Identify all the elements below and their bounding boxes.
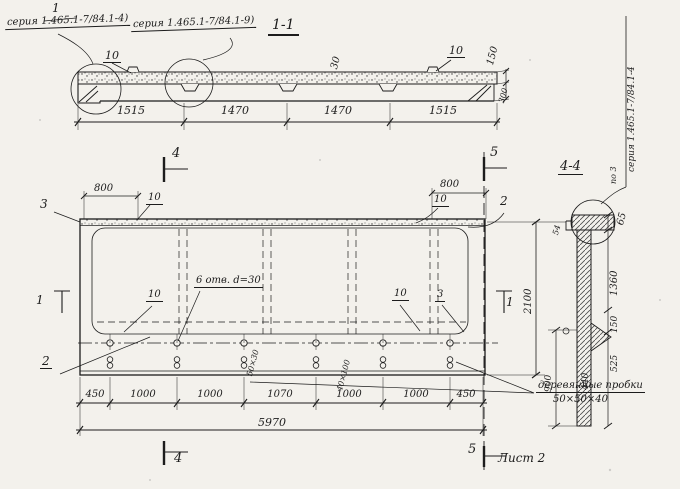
dim-10-inner-left: 10 xyxy=(146,290,163,302)
dim-450-a: 450 xyxy=(75,390,115,400)
plugs-note-line2: 50×50×40 xyxy=(553,395,608,405)
plan-view-linework xyxy=(54,152,566,470)
position-2-top-right: 2 xyxy=(500,195,508,207)
dim-440: 440 xyxy=(582,373,591,390)
dim-900: 900 xyxy=(545,375,554,392)
section-mark-1-left: 1 xyxy=(36,294,44,306)
blueprint-sheet: 1 серия 1.465.1-7/84.1-4) серия 1.465.1-… xyxy=(0,0,680,489)
position-1-label: 1 xyxy=(52,2,60,14)
dim-525: 525 xyxy=(611,355,620,372)
dim-1000-c: 1000 xyxy=(329,390,369,400)
dim-10-top-right: 10 xyxy=(447,45,465,58)
dim-1000-b: 1000 xyxy=(190,390,230,400)
section-1-1-title: 1-1 xyxy=(268,18,299,36)
dim-10-plan-top-right: 10 xyxy=(432,195,449,207)
dim-450-b: 450 xyxy=(446,390,486,400)
dim-1070: 1070 xyxy=(260,390,300,400)
po-3-label: по 3 xyxy=(610,166,618,184)
dim-1515-a: 1515 xyxy=(111,105,151,116)
series-vertical-label: серия 1.465.1-7/84.1-4 xyxy=(628,66,637,172)
section-mark-1-right: 1 xyxy=(506,296,514,308)
dim-1470-b: 1470 xyxy=(318,105,358,116)
section-mark-4-bottom: 4 xyxy=(174,452,182,465)
section-4-4-title: 4-4 xyxy=(558,160,583,175)
position-3-inner: 3 xyxy=(435,290,445,302)
section-mark-5-top: 5 xyxy=(490,146,498,159)
sheet-reference: Лист 2 xyxy=(498,452,545,464)
dim-10-inner-right: 10 xyxy=(392,289,409,301)
dim-1000-a: 1000 xyxy=(123,390,163,400)
dim-total-5970: 5970 xyxy=(248,417,296,428)
holes-note: 6 отв. d=30 xyxy=(194,276,263,288)
dim-800-right: 800 xyxy=(440,180,459,190)
dim-800-left: 800 xyxy=(94,184,113,194)
dim-1000-d: 1000 xyxy=(396,390,436,400)
section-mark-5-bottom: 5 xyxy=(468,443,476,456)
dim-1360: 1360 xyxy=(610,271,620,296)
drawing-linework xyxy=(0,0,680,489)
position-2-bottom-left: 2 xyxy=(40,355,52,369)
dim-1470-a: 1470 xyxy=(215,105,255,116)
section-mark-4-top: 4 xyxy=(172,147,180,160)
wooden-plugs xyxy=(107,357,453,369)
dim-150-section: 150 xyxy=(611,316,620,333)
dim-2100: 2100 xyxy=(524,289,534,314)
dim-10-top-left: 10 xyxy=(103,50,121,63)
position-3-left: 3 xyxy=(40,198,48,210)
dim-10-plan-top-left: 10 xyxy=(146,193,163,205)
dim-1515-b: 1515 xyxy=(423,105,463,116)
